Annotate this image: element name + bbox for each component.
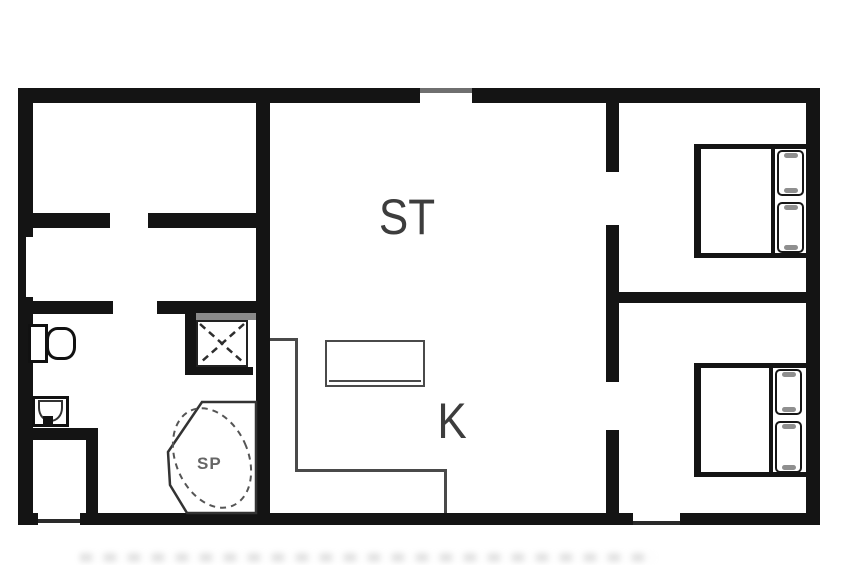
outer-wall-top-left (18, 88, 420, 103)
sink-tap (43, 416, 53, 426)
kitchen-counter-edge (329, 380, 421, 382)
kitchen-line-1 (270, 338, 298, 341)
top-window-opening (420, 88, 472, 93)
kitchen-line-3 (295, 469, 447, 472)
bedroom-wall-upper (606, 103, 619, 172)
pillow-icon (777, 202, 804, 253)
bed-top-divider (771, 147, 775, 255)
bottom-door-threshold (633, 521, 680, 525)
toilet-tank (28, 324, 48, 363)
kitchen-line-2 (295, 338, 298, 472)
hall-wall-upper-left (33, 213, 110, 228)
closet-wall-top (33, 428, 98, 440)
room-label-living: ST (376, 192, 438, 242)
spa-label: SP (197, 455, 222, 472)
outer-wall-bottom-1 (18, 513, 38, 525)
bedroom-wall-mid (606, 225, 619, 382)
room-label-kitchen: K (433, 396, 472, 446)
left-window-opening (18, 237, 26, 297)
outer-wall-top-right (472, 88, 820, 103)
shower-frame-bottom (185, 367, 253, 375)
bedrooms-divider-wall (606, 292, 806, 303)
shower-x-icon (198, 322, 246, 365)
closet-door-threshold (38, 519, 80, 523)
outer-wall-right (806, 88, 820, 525)
outer-wall-bottom-3 (680, 513, 820, 525)
hall-wall-lower-left (33, 301, 113, 314)
pillow-icon (777, 150, 804, 196)
toilet-bowl (46, 327, 76, 360)
kitchen-line-4 (444, 469, 447, 513)
closet-wall-right (86, 440, 98, 518)
scan-artifact (80, 553, 655, 562)
pillow-icon (775, 369, 802, 415)
outer-wall-left-upper (18, 88, 33, 237)
hall-wall-upper-right (148, 213, 256, 228)
central-wall (256, 103, 270, 513)
bed-bottom-divider (769, 366, 773, 474)
shower-frame-left (185, 313, 196, 375)
bedroom-wall-lower (606, 430, 619, 513)
pillow-icon (775, 421, 802, 473)
floorplan-canvas: SP ST K (0, 0, 848, 565)
